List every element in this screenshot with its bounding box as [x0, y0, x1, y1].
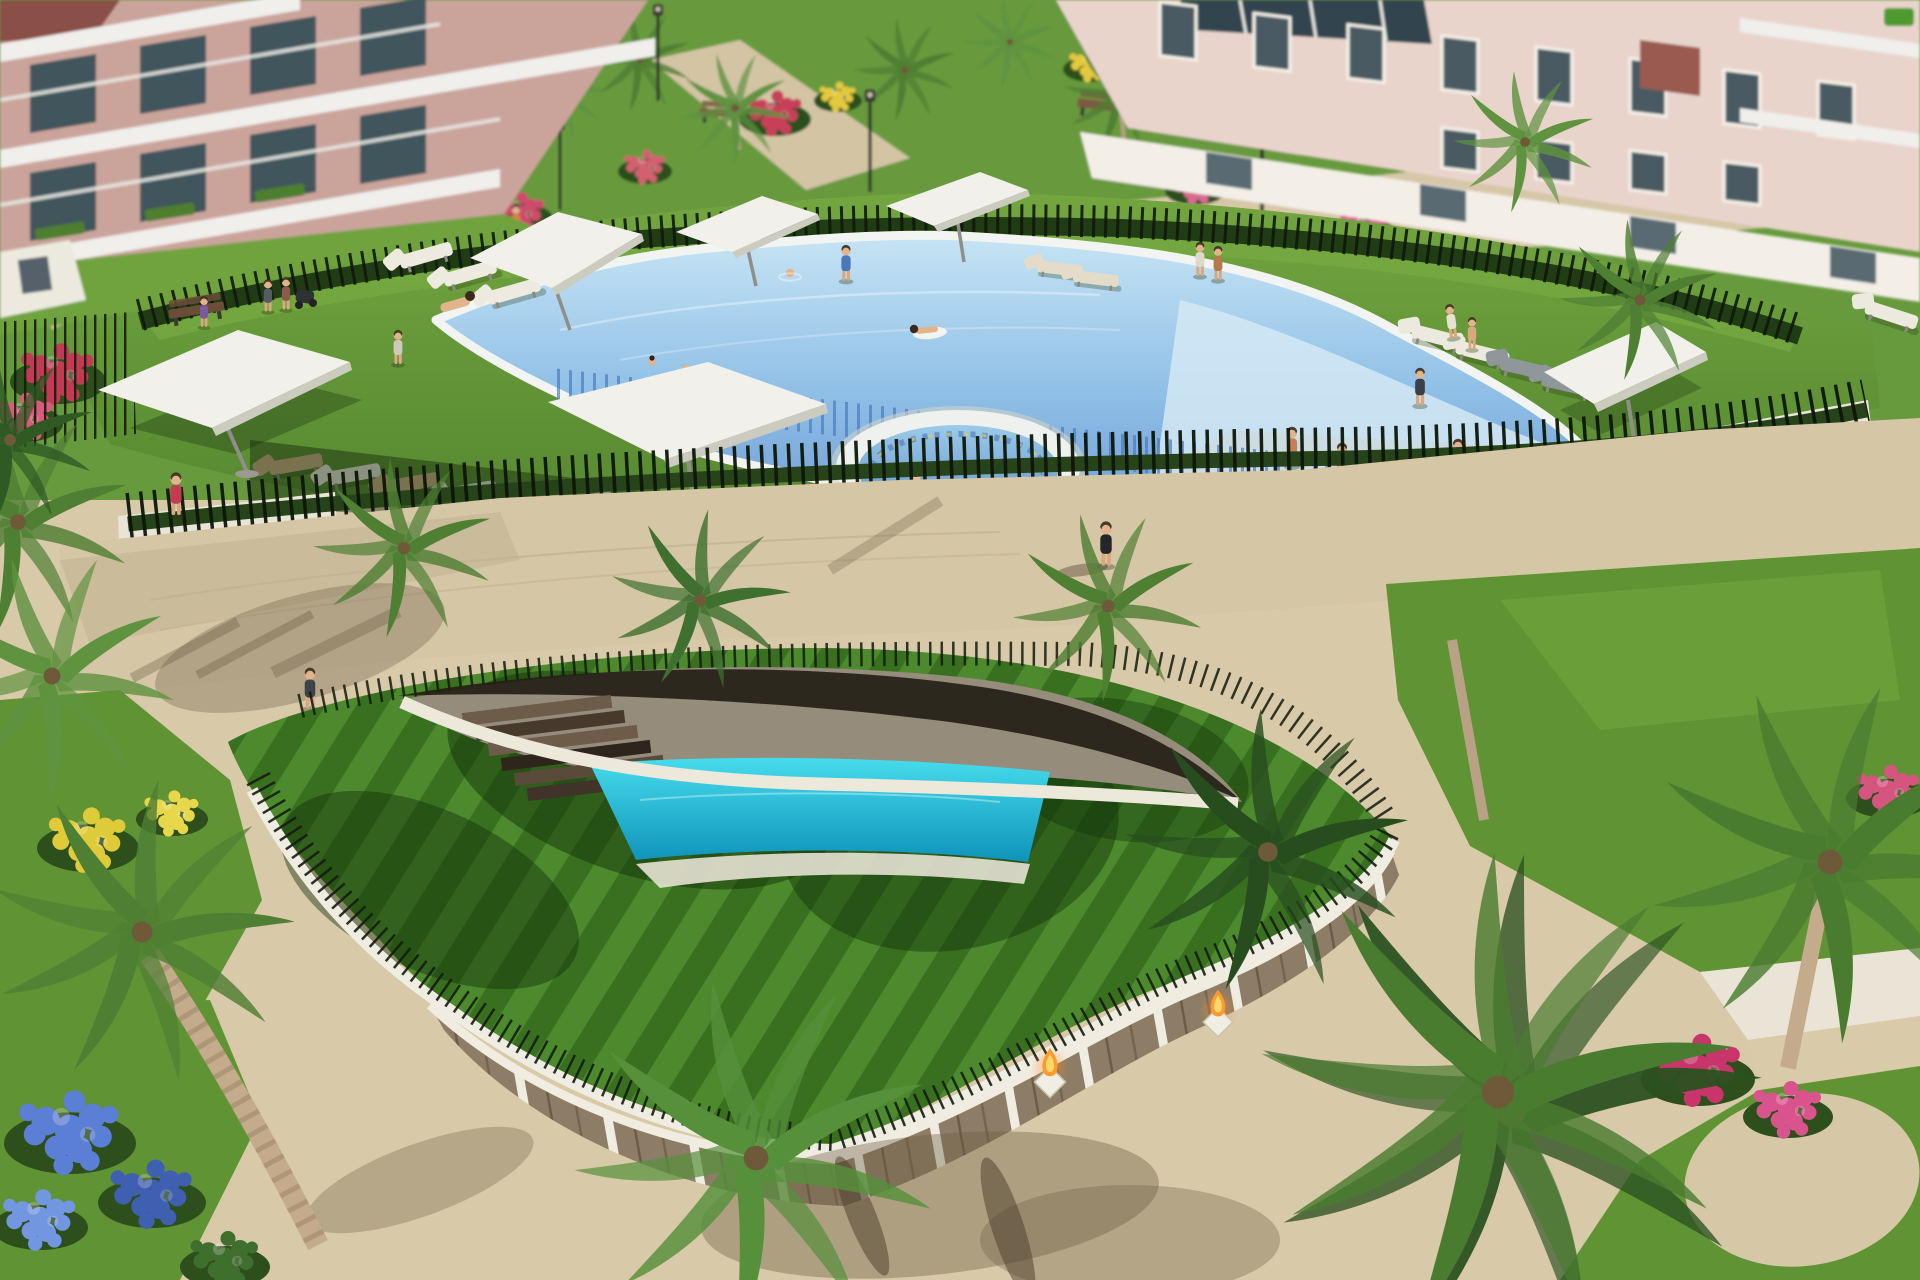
- aerial-rendering: [0, 0, 1920, 1280]
- rendering-canvas: [0, 0, 1920, 1280]
